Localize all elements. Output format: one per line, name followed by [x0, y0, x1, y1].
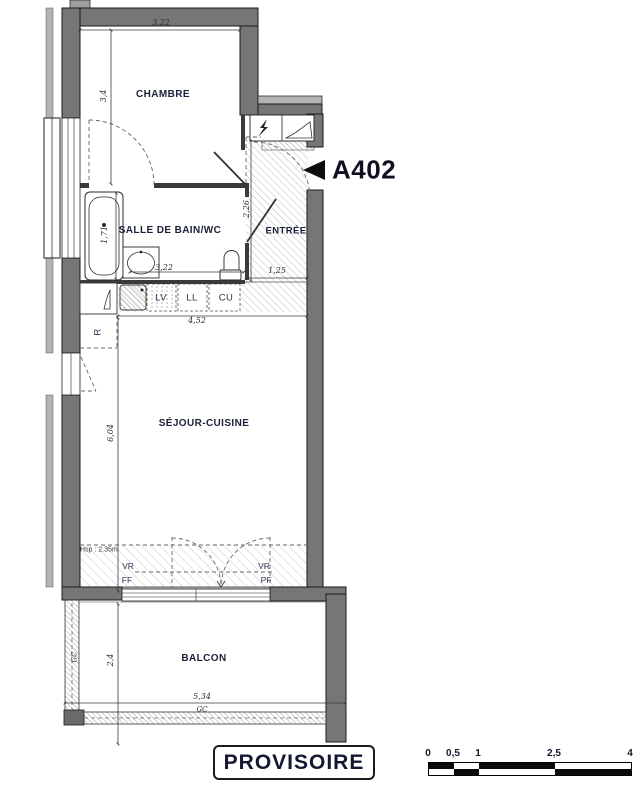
dim-chambre-hauteur: 3,4 — [100, 90, 108, 103]
shutter-label-vr-left: VR — [122, 562, 134, 571]
dim-bain-hauteur: 1,71 — [101, 226, 109, 244]
room-label-entree: ENTRÉE — [266, 226, 307, 236]
appliance-label-lv: LV — [155, 293, 167, 303]
scale-label-0: 0 — [425, 748, 431, 759]
exterior-walls — [46, 0, 346, 742]
dim-chambre-largeur: 3,22 — [152, 19, 170, 27]
provisoire-stamp: PROVISOIRE — [213, 745, 375, 780]
scale-segment — [479, 769, 555, 775]
dim-cuisine-largeur: 4,52 — [188, 317, 206, 325]
scale-label-05: 0,5 — [446, 748, 460, 759]
kitchen-sink — [120, 285, 146, 310]
duct-cabinet — [80, 283, 117, 314]
scale-bar-graphic — [428, 762, 632, 776]
room-label-chambre: CHAMBRE — [136, 90, 190, 100]
room-label-sejour-cuisine: SÉJOUR-CUISINE — [159, 419, 250, 429]
appliance-label-refrigerateur: R — [93, 328, 103, 335]
railing-label-gc-left: GC — [72, 652, 79, 663]
scale-label-25: 2,5 — [547, 748, 561, 759]
scale-label-4: 4 — [627, 748, 633, 759]
dim-balcon-hauteur: 2,4 — [107, 654, 115, 667]
toilet — [220, 251, 241, 280]
entry-closet — [250, 115, 314, 141]
scale-segment — [454, 769, 479, 775]
washbasin — [123, 247, 159, 278]
floor-plan-canvas: CHAMBRE SALLE DE BAIN/WC ENTRÉE SÉJOUR-C… — [0, 0, 638, 800]
dim-bain-largeur: 3,22 — [155, 264, 173, 272]
door-label-pf: PF — [261, 576, 272, 585]
dim-entree-largeur: 1,25 — [268, 267, 286, 275]
dim-entree-hauteur: 2,26 — [243, 200, 251, 218]
scale-segment — [555, 769, 631, 775]
scale-segment — [429, 769, 454, 775]
unit-arrow-icon — [303, 160, 325, 180]
ceiling-height-note: Hsp : 2.35m — [80, 547, 118, 554]
room-label-balcon: BALCON — [181, 654, 226, 664]
room-label-salle-de-bain: SALLE DE BAIN/WC — [119, 226, 222, 236]
shutter-label-vr-right: VR — [258, 562, 270, 571]
floor-plan-drawing — [0, 0, 638, 800]
appliance-label-cu: CU — [219, 293, 234, 303]
provisoire-stamp-label: PROVISOIRE — [224, 751, 365, 775]
dim-balcon-largeur: 5,34 — [193, 693, 211, 701]
appliance-label-ll: LL — [186, 293, 197, 303]
railing-label-gc-bottom: GC — [197, 707, 208, 714]
scale-bar: 0 0,5 1 2,5 4 — [428, 748, 634, 780]
scale-label-1: 1 — [475, 748, 481, 759]
dim-sejour-hauteur: 6,04 — [107, 424, 115, 442]
unit-label: A402 — [332, 155, 396, 186]
window-label-ff: FF — [122, 576, 132, 585]
